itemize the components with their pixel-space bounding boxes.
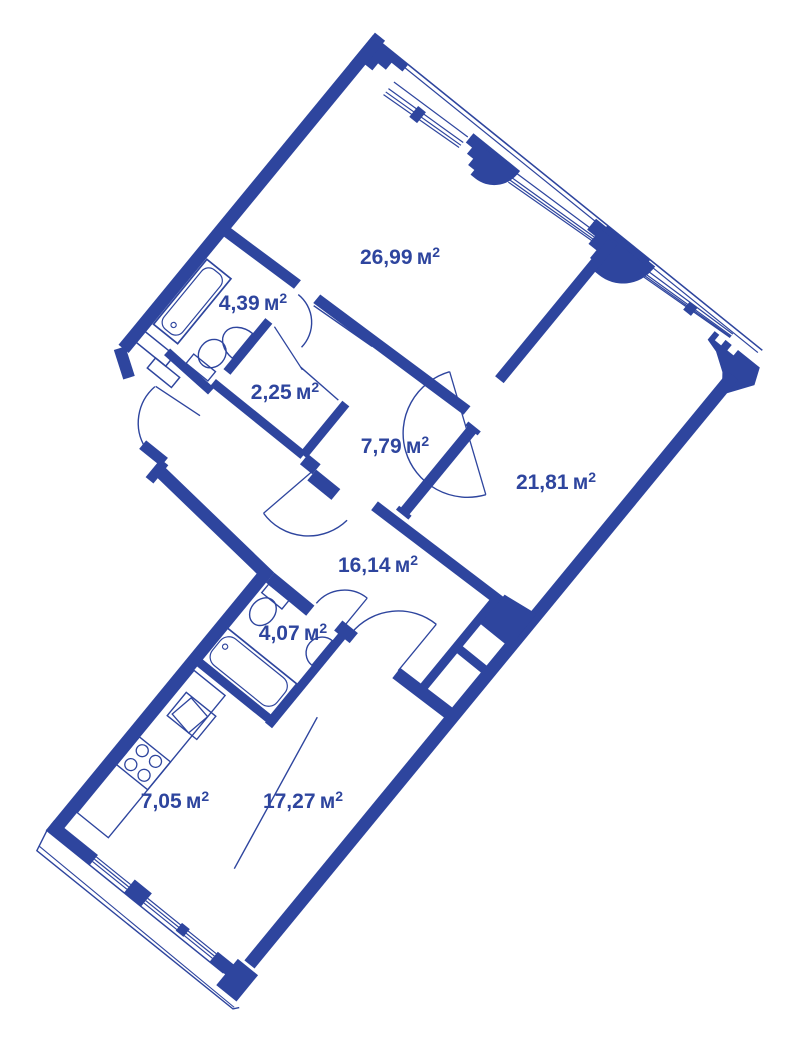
- svg-text:7,05 м2: 7,05 м2: [141, 788, 210, 813]
- svg-text:2,25 м2: 2,25 м2: [251, 379, 320, 404]
- svg-text:21,81 м2: 21,81 м2: [516, 469, 596, 494]
- svg-text:16,14 м2: 16,14 м2: [338, 552, 418, 577]
- svg-text:7,79 м2: 7,79 м2: [361, 433, 430, 458]
- svg-text:26,99 м2: 26,99 м2: [360, 244, 440, 269]
- svg-text:17,27 м2: 17,27 м2: [263, 788, 343, 813]
- svg-text:4,39 м2: 4,39 м2: [219, 290, 288, 315]
- svg-text:4,07 м2: 4,07 м2: [259, 620, 328, 645]
